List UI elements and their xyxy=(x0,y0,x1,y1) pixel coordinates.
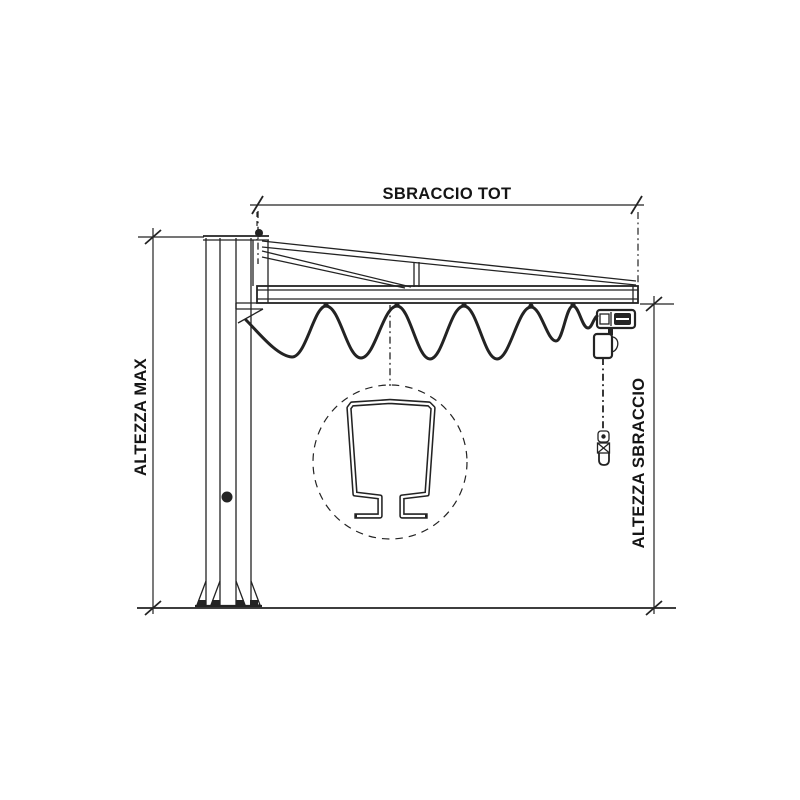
tie-rods xyxy=(262,241,636,288)
dimension-sbraccio-tot: SBRACCIO TOT xyxy=(250,185,644,284)
jib-beam xyxy=(257,286,638,303)
drawing-page: SBRACCIO TOT ALTEZZA MAX ALTEZZA SBRACCI… xyxy=(0,0,800,800)
dimension-altezza-max: ALTEZZA MAX xyxy=(132,228,204,615)
pivot-dot xyxy=(255,229,263,237)
rail-cross-section xyxy=(349,402,433,517)
hook-block xyxy=(598,431,610,465)
dim-label-altezza-max: ALTEZZA MAX xyxy=(132,358,150,476)
hoist xyxy=(594,310,635,465)
dimension-altezza-sbraccio: ALTEZZA SBRACCIO xyxy=(630,296,674,615)
cable-trolley-dot xyxy=(461,302,466,307)
hoist-body xyxy=(594,334,612,358)
cable-trolley-dot xyxy=(394,302,399,307)
slewing-head xyxy=(236,211,268,323)
cable-trolley-dot xyxy=(528,303,533,308)
cable-trolley-dot xyxy=(323,302,328,307)
cable-trolley-dot xyxy=(570,302,575,307)
dim-label-altezza-sbraccio: ALTEZZA SBRACCIO xyxy=(630,378,648,549)
base-gussets xyxy=(195,581,262,606)
crane-diagram: SBRACCIO TOT ALTEZZA MAX ALTEZZA SBRACCI… xyxy=(0,0,800,800)
hook xyxy=(599,453,609,465)
column-dot xyxy=(222,492,233,503)
dim-label-sbraccio-tot: SBRACCIO TOT xyxy=(383,185,512,203)
detail-circle xyxy=(313,385,467,539)
festoon-cable xyxy=(246,302,597,359)
